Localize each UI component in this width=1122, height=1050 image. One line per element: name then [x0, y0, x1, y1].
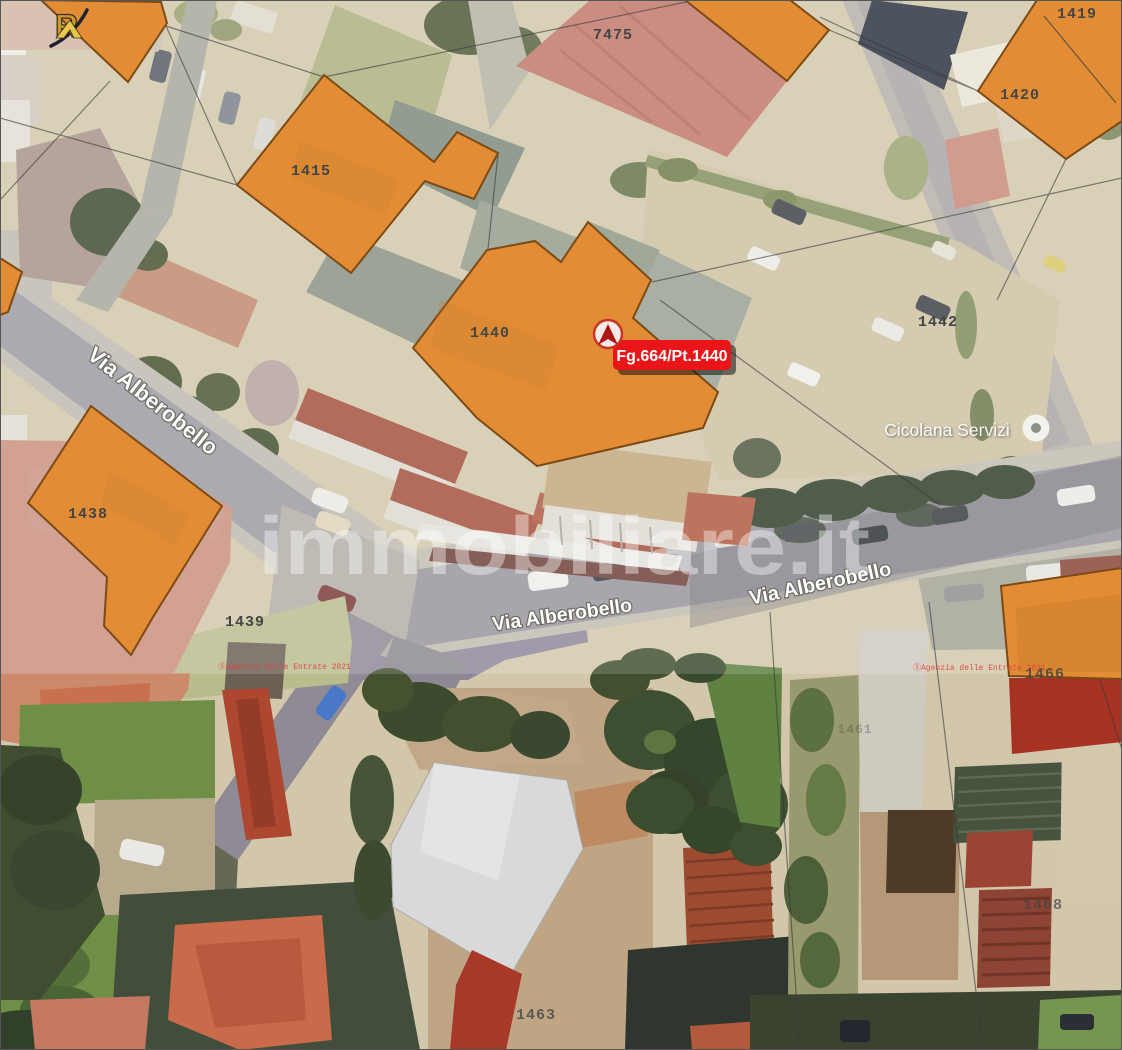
svg-text:ⓈAgenzia delle Entrate 2021: ⓈAgenzia delle Entrate 2021 [913, 663, 1046, 673]
svg-text:ⓈAgenzia delle Entrate 2021: ⓈAgenzia delle Entrate 2021 [218, 662, 351, 672]
svg-text:Fg.664/Pt.1440: Fg.664/Pt.1440 [616, 348, 727, 365]
svg-text:Cicolana Servizi: Cicolana Servizi [884, 420, 1009, 440]
svg-text:1420: 1420 [1000, 87, 1040, 104]
svg-text:1438: 1438 [68, 506, 108, 523]
svg-text:1415: 1415 [291, 163, 331, 180]
svg-text:1440: 1440 [470, 325, 510, 342]
svg-text:1463: 1463 [516, 1007, 556, 1024]
svg-text:1439: 1439 [225, 614, 265, 631]
svg-text:1419: 1419 [1057, 6, 1097, 23]
svg-text:immobiliare.it: immobiliare.it [258, 501, 870, 592]
svg-text:7475: 7475 [593, 27, 633, 44]
svg-text:1461: 1461 [837, 722, 872, 737]
svg-text:1442: 1442 [918, 314, 958, 331]
svg-text:1468: 1468 [1023, 897, 1063, 914]
